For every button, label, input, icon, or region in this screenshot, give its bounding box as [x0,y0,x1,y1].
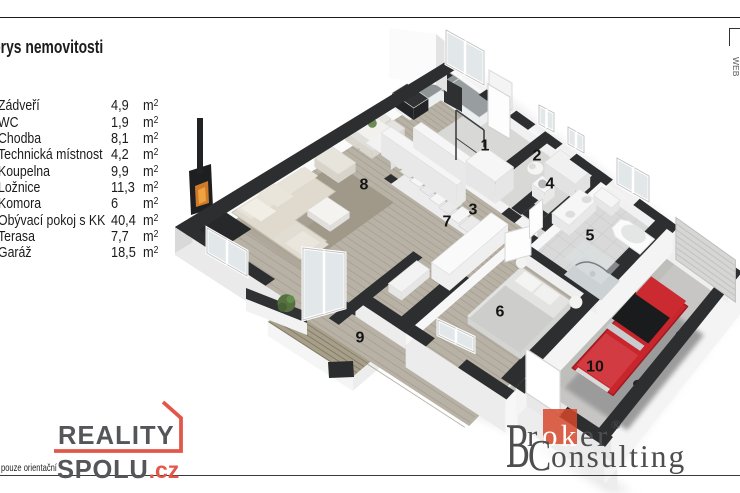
svg-text:1: 1 [481,138,490,155]
svg-text:5: 5 [586,228,595,245]
svg-text:3: 3 [469,202,478,219]
svg-text:9: 9 [356,330,365,347]
svg-text:8: 8 [360,177,369,194]
svg-text:7: 7 [443,214,452,231]
svg-text:2: 2 [533,148,542,165]
svg-text:6: 6 [496,304,505,321]
svg-text:4: 4 [546,176,555,193]
svg-text:10: 10 [586,359,604,376]
